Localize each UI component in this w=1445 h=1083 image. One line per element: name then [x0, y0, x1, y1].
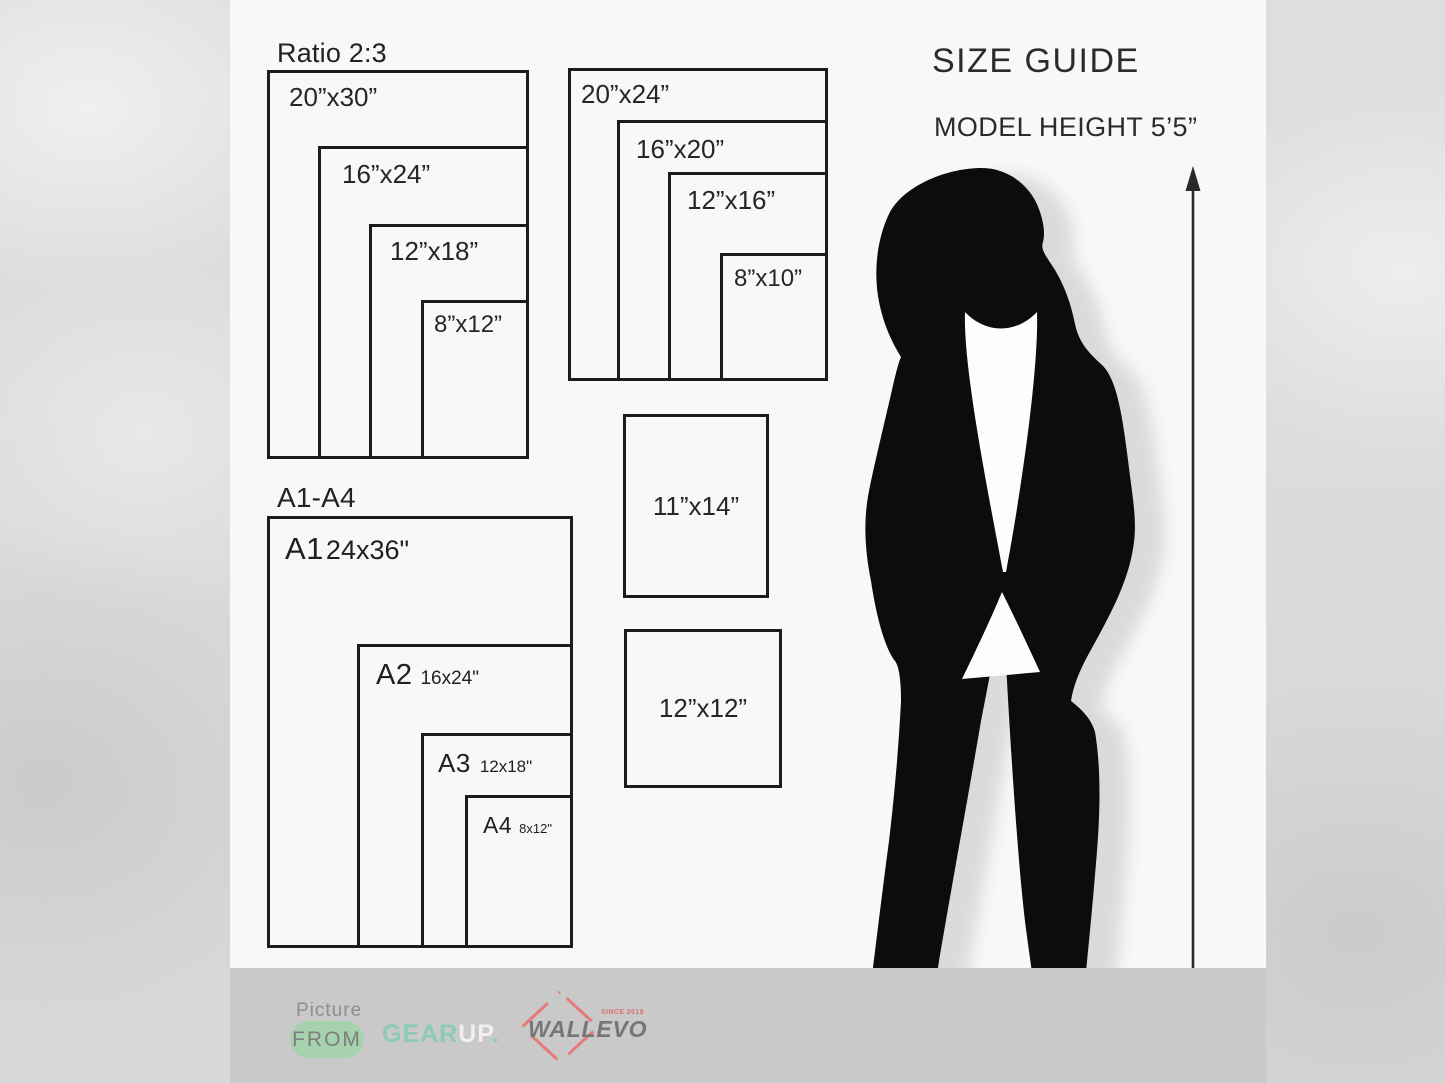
size-label-16x24: 16”x24” [342, 159, 430, 190]
size-label-8x12: 8”x12” [434, 311, 502, 339]
picture-from-logo: FROM [290, 1021, 364, 1058]
gearup-up-text: UP [458, 1020, 492, 1048]
size-label-a2: A2 16x24" [376, 659, 479, 692]
size-label-a1: A1 24x36" [285, 531, 409, 567]
page-background: Ratio 2:3 20”x30” 16”x24” 12”x18” 8”x12”… [0, 0, 1445, 1083]
size-box-a4: A4 8x12" [465, 795, 573, 948]
size-box-8x12: 8”x12” [421, 300, 529, 459]
a1-size: 24x36" [326, 535, 409, 566]
a3-size: 12x18" [480, 757, 532, 777]
model-silhouette [850, 160, 1200, 1020]
size-label-12x16: 12”x16” [687, 185, 775, 216]
model-height-label: MODEL HEIGHT 5’5” [934, 112, 1197, 143]
wallevo-logo: WALLEVO [528, 1016, 647, 1043]
size-label-12x12: 12”x12” [659, 693, 747, 724]
size-box-8x10: 8”x10” [720, 253, 828, 381]
wallevo-since-label: SINCE 2019 [601, 1009, 644, 1016]
a1-code: A1 [285, 531, 324, 567]
from-label: FROM [292, 1028, 362, 1052]
picture-label: Picture [296, 1000, 362, 1022]
a4-code: A4 [483, 812, 512, 839]
height-arrow-icon [1180, 166, 1206, 1014]
size-label-20x24: 20”x24” [581, 79, 669, 110]
size-box-12x12: 12”x12” [624, 629, 782, 788]
size-label-a4: A4 8x12" [483, 812, 552, 839]
size-box-11x14: 11”x14” [623, 414, 769, 598]
model-body [865, 168, 1135, 1007]
size-label-11x14: 11”x14” [653, 491, 739, 522]
a4-size: 8x12" [519, 821, 552, 836]
page-title: SIZE GUIDE [932, 42, 1140, 81]
gearup-gear-text: GEAR [382, 1020, 458, 1048]
size-label-a3: A3 12x18" [438, 748, 532, 779]
a-series-heading: A1-A4 [277, 482, 356, 514]
size-label-12x18: 12”x18” [390, 236, 478, 267]
size-label-16x20: 16”x20” [636, 134, 724, 165]
a2-size: 16x24" [420, 668, 479, 690]
a3-code: A3 [438, 748, 471, 779]
a2-code: A2 [376, 659, 412, 692]
gearup-logo: GEARUP. [382, 1020, 500, 1049]
size-label-8x10: 8”x10” [734, 265, 802, 293]
ratio-2-3-heading: Ratio 2:3 [277, 38, 387, 69]
size-guide-panel: Ratio 2:3 20”x30” 16”x24” 12”x18” 8”x12”… [230, 0, 1266, 1083]
gearup-dot: . [492, 1020, 500, 1048]
size-label-20x30: 20”x30” [289, 82, 377, 113]
